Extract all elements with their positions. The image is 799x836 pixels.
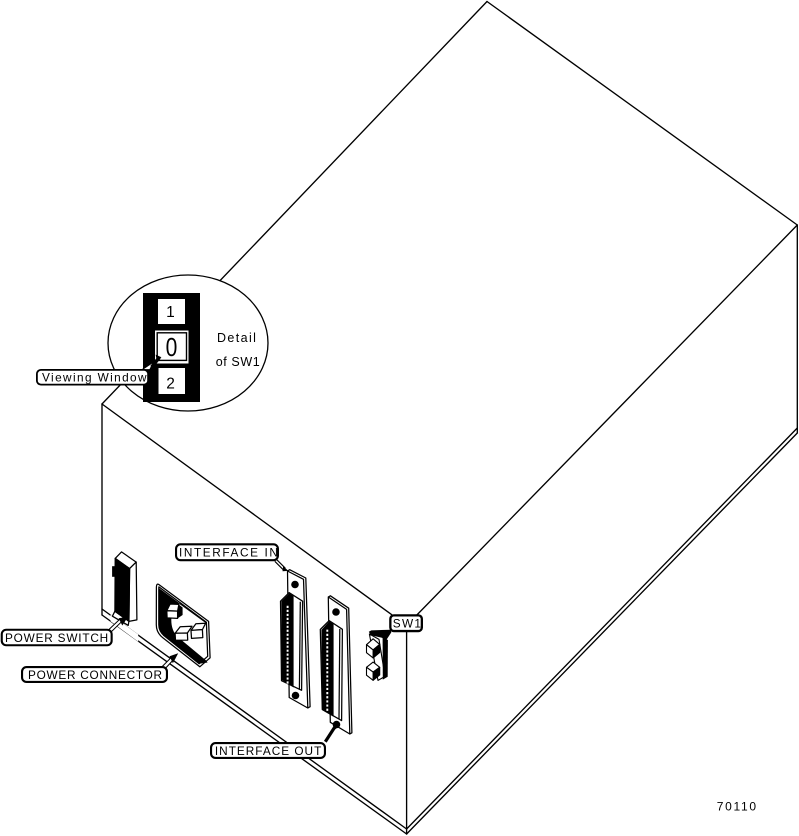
svg-text:Viewing Window: Viewing Window (42, 370, 148, 384)
svg-text:POWER CONNECTOR: POWER CONNECTOR (28, 668, 163, 682)
svg-text:0: 0 (166, 334, 178, 363)
svg-text:70110: 70110 (717, 800, 758, 814)
svg-text:INTERFACE OUT: INTERFACE OUT (215, 744, 322, 758)
svg-text:SW1: SW1 (393, 617, 422, 631)
svg-text:Detail: Detail (217, 331, 257, 345)
svg-text:of SW1: of SW1 (216, 355, 261, 369)
svg-text:INTERFACE IN: INTERFACE IN (179, 546, 279, 560)
svg-text:1: 1 (166, 304, 175, 321)
svg-text:2: 2 (166, 375, 175, 392)
svg-text:POWER SWITCH: POWER SWITCH (5, 631, 109, 645)
